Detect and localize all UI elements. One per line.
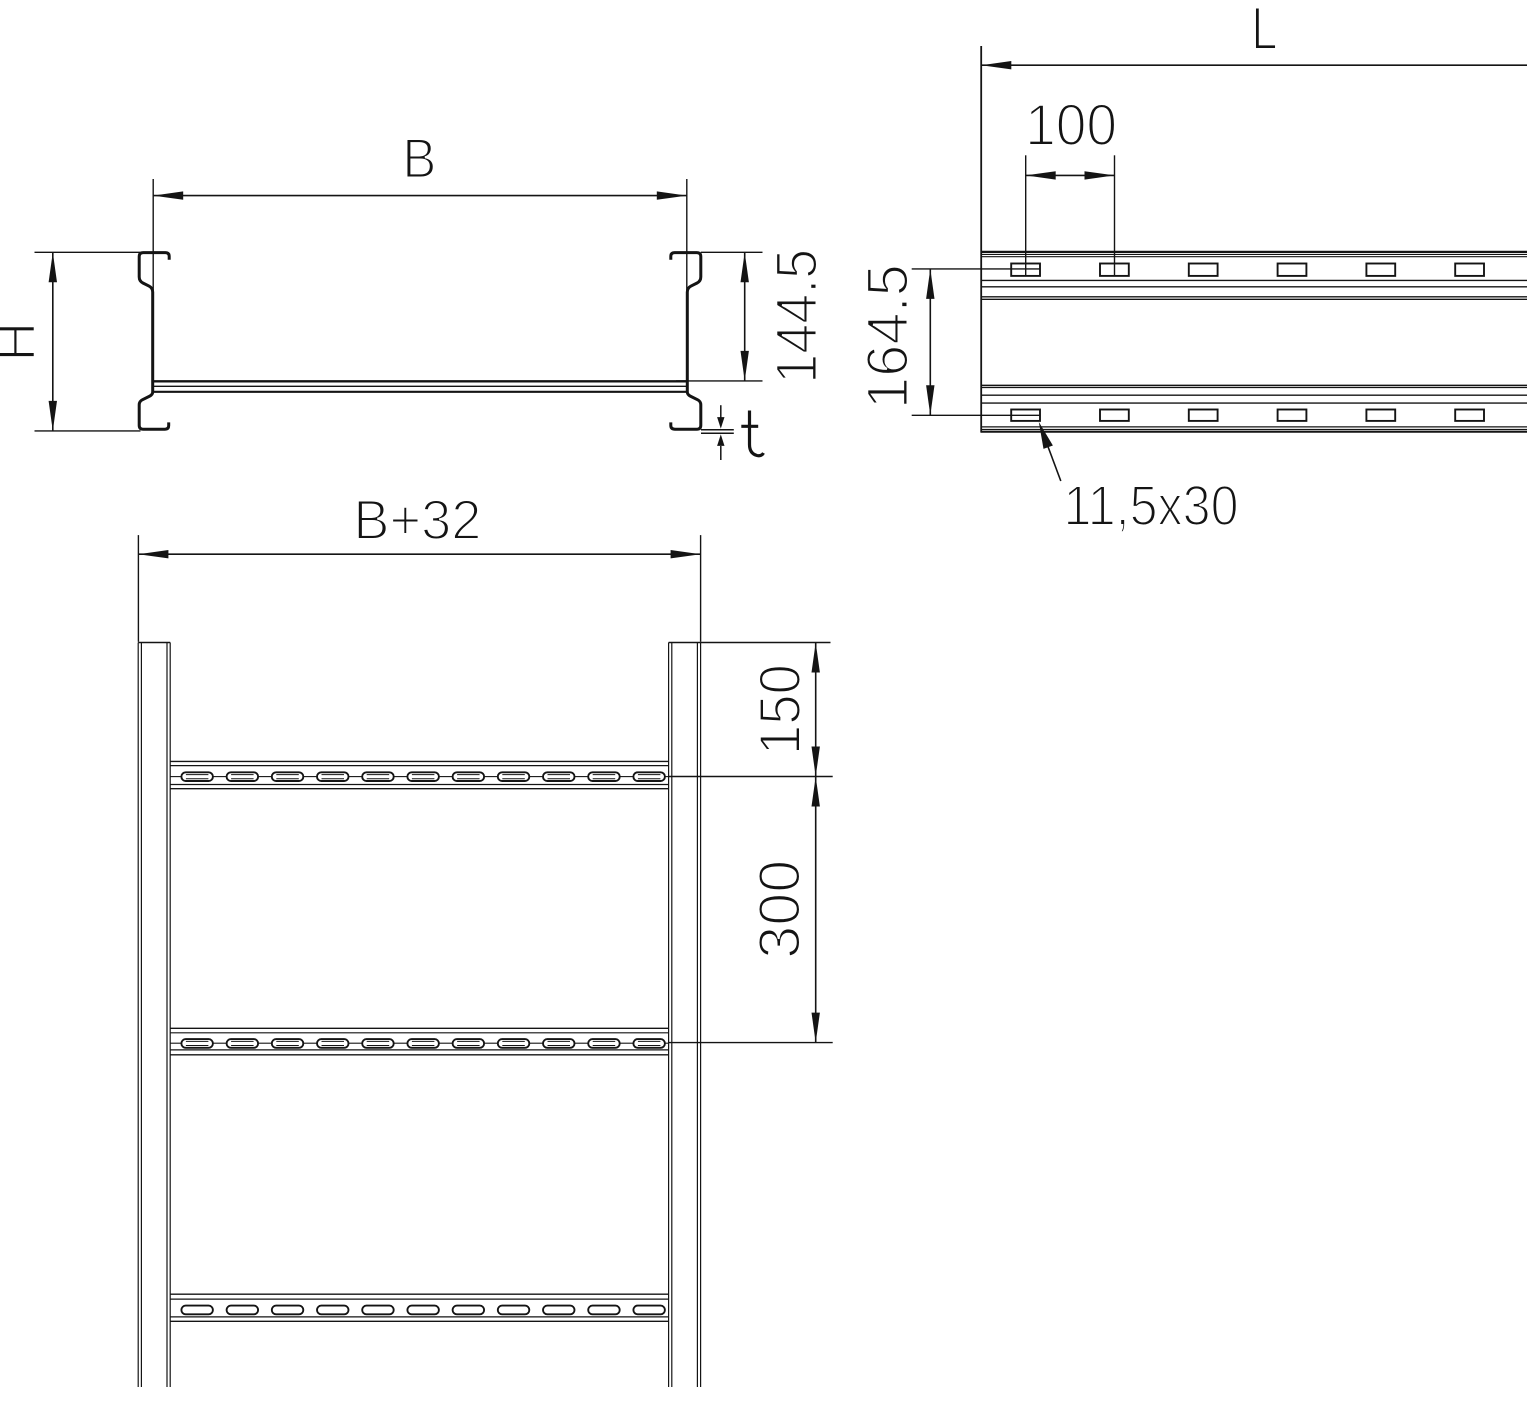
svg-text:B: B: [402, 127, 436, 190]
svg-text:100: 100: [1025, 93, 1117, 158]
svg-text:300: 300: [748, 860, 813, 959]
svg-text:11,5x30: 11,5x30: [1064, 474, 1239, 538]
svg-text:B+32: B+32: [353, 488, 481, 551]
svg-text:L: L: [1251, 0, 1277, 62]
svg-text:150: 150: [748, 664, 813, 755]
svg-text:144.5: 144.5: [765, 249, 830, 384]
svg-text:H: H: [0, 322, 47, 362]
svg-text:164.5: 164.5: [856, 264, 921, 409]
